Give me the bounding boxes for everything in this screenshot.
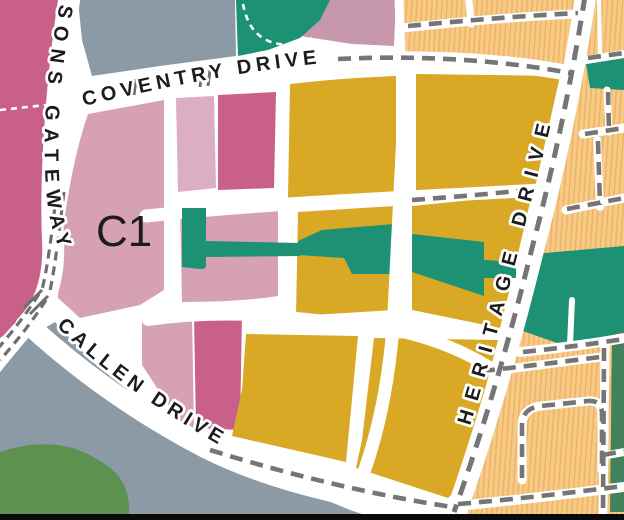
zone-pink-column2[interactable]	[176, 96, 216, 192]
map-edge-border	[0, 514, 624, 520]
zone-pink-column3-dark[interactable]	[218, 92, 276, 190]
road-ne-lot-line[interactable]	[599, 0, 600, 54]
road-east-6[interactable]	[570, 300, 572, 345]
zoning-map-canvas[interactable]: SONS GATEWAY COVENTRY DRIVE CALLEN DRIVE…	[0, 0, 624, 520]
centerline-east-4	[598, 141, 600, 205]
zone-label-c1: C1	[96, 207, 152, 256]
zone-gold-northwest[interactable]	[288, 76, 396, 198]
zone-pink-south-dark[interactable]	[194, 312, 242, 430]
